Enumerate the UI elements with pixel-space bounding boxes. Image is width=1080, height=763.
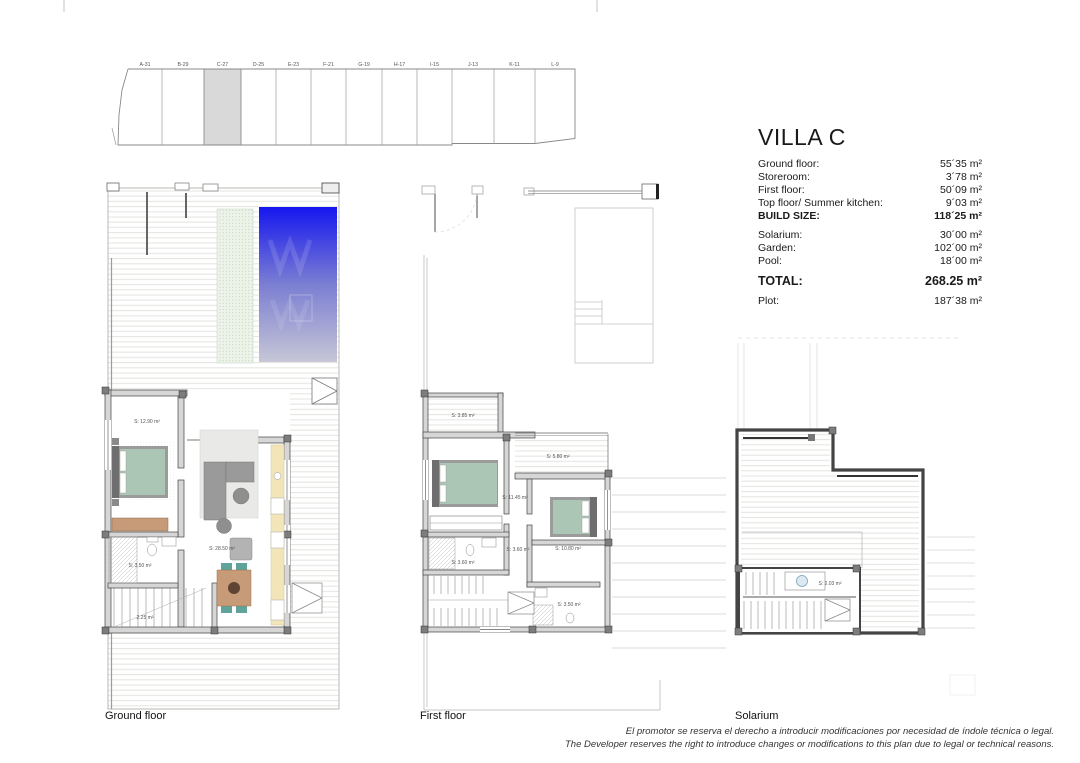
first-floor-plan: S: 3.85 m² S: 5.80 m² S: 11.45 m² S: 10.… — [420, 180, 730, 715]
solarium-plan: S: 2.03 m² — [730, 335, 980, 710]
entrance-canopy — [508, 592, 534, 614]
room-label-bathroom1: S: 3.60 m² — [451, 560, 474, 566]
room-label-bedroom: S: 12.90 m² — [134, 419, 160, 425]
disclaimer-line-en: The Developer reserves the right to intr… — [494, 739, 1054, 752]
info-value: 102´00 m² — [934, 242, 982, 255]
info-value: 55´35 m² — [940, 158, 982, 171]
plot-label: G-19 — [358, 62, 370, 68]
sink — [797, 576, 808, 587]
plot-label: F-21 — [323, 62, 334, 68]
neighbor-lines — [927, 537, 975, 695]
info-value: 50´09 m² — [940, 184, 982, 197]
plot-label: B-29 — [178, 62, 189, 68]
sofa — [204, 462, 226, 520]
bedroom2-furniture — [550, 497, 597, 537]
room-label-bathroom: S: 3.50 m² — [128, 563, 151, 569]
neighbor-lines — [612, 478, 726, 648]
plot-label: J-13 — [468, 62, 478, 68]
room-label-bathroom2: S: 3.50 m² — [557, 602, 580, 608]
pool — [259, 207, 337, 362]
coffee-table — [233, 488, 249, 504]
info-label: Pool: — [758, 255, 782, 268]
green-area — [217, 209, 253, 363]
dining-set — [217, 563, 251, 613]
disclaimer: El promotor se reserva el derecho a intr… — [494, 726, 1054, 751]
ground-floor-plan: S: 12.90 m² S: 28.50 m² S: 3.50 m² 2.25 … — [100, 180, 345, 715]
room-label-terrace-right: S: 5.80 m² — [546, 454, 569, 460]
kitchen — [271, 445, 284, 625]
room-label-stairs: 2.25 m² — [137, 615, 154, 621]
fold-mark — [63, 0, 65, 12]
disclaimer-line-es: El promotor se reserva el derecho a intr… — [494, 726, 1054, 739]
info-label: Storeroom: — [758, 171, 810, 184]
dresser — [112, 518, 168, 531]
villa-title: VILLA C — [758, 124, 982, 151]
highlighted-plot-c27 — [204, 69, 241, 145]
upper-faint-outline — [738, 338, 960, 430]
plot-label: A-31 — [140, 62, 151, 68]
info-value: 9´03 m² — [946, 197, 982, 210]
site-plan-strip — [112, 69, 575, 145]
plot-label: H-17 — [394, 62, 405, 68]
info-value: 18´00 m² — [940, 255, 982, 268]
info-label-build-size: BUILD SIZE: — [758, 210, 820, 223]
info-value: 3´78 m² — [946, 171, 982, 184]
lower-floor-outline — [575, 208, 653, 363]
plot-label: L-9 — [551, 62, 559, 68]
room-label-bedroom1: S: 11.45 m² — [502, 495, 528, 501]
plot-label: I-15 — [430, 62, 439, 68]
info-label: First floor: — [758, 184, 805, 197]
caption-solarium: Solarium — [735, 710, 778, 722]
plan-sheet: { "site_plan": { "plots": ["A-31","B-29"… — [0, 0, 1080, 763]
caption-first-floor: First floor — [420, 710, 466, 722]
plot-label: K-11 — [509, 62, 520, 68]
entrance-canopy — [292, 583, 322, 613]
site-plan: A-31 B-29 C-27 D-25 E-23 F-21 G-19 H-17 … — [100, 55, 590, 150]
info-label: Solarium: — [758, 229, 802, 242]
plot-labels: A-31 B-29 C-27 D-25 E-23 F-21 G-19 H-17 … — [140, 62, 559, 68]
plot-label: C-27 — [217, 62, 228, 68]
room-label-hall: S: 3.60 m² — [506, 547, 529, 553]
info-value: 268.25 m² — [925, 275, 982, 288]
info-value: 187´38 m² — [934, 295, 982, 308]
fold-mark — [596, 0, 598, 12]
info-label: Garden: — [758, 242, 796, 255]
info-value: 30´00 m² — [940, 229, 982, 242]
info-label: Ground floor: — [758, 158, 819, 171]
info-value: 118´25 m² — [934, 210, 982, 223]
info-label: Plot: — [758, 295, 779, 308]
slope-marker — [312, 378, 337, 404]
villa-info: VILLA C Ground floor:55´35 m² Storeroom:… — [758, 124, 982, 308]
house-walls — [102, 387, 291, 634]
info-label-total: TOTAL: — [758, 275, 803, 288]
plot-label: D-25 — [253, 62, 264, 68]
room-label-bedroom2: S: 10.80 m² — [555, 546, 581, 552]
caption-ground-floor: Ground floor — [105, 710, 166, 722]
plot-label: E-23 — [288, 62, 299, 68]
room-label-storeroom: S: 2.03 m² — [818, 581, 841, 587]
bedroom1-furniture — [430, 460, 502, 530]
room-label-terrace-top: S: 3.85 m² — [451, 413, 474, 419]
info-label: Top floor/ Summer kitchen: — [758, 197, 883, 210]
room-label-living: S: 28.50 m² — [209, 546, 235, 552]
solarium-room-labels: S: 2.03 m² — [818, 581, 841, 587]
